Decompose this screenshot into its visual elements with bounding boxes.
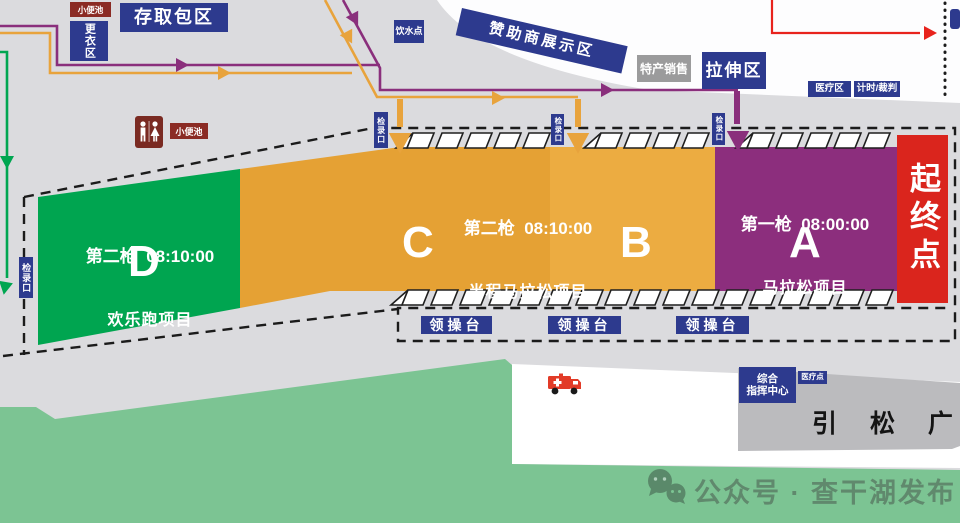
urinal-box-restroom: 小便池 (170, 123, 208, 139)
podium-box-1: 领操台 (421, 316, 492, 334)
checkin-gate-3: 检录口 (712, 113, 725, 145)
zone-d-letter: D (128, 240, 160, 284)
ambulance-icon (547, 373, 584, 396)
bag-storage-box: 存取包区 (120, 3, 228, 32)
restroom-icon (135, 116, 163, 148)
logo-fragment (950, 9, 960, 29)
zone-a-event: 马拉松项目 (715, 274, 895, 298)
zone-d-label: 第二枪 08:10:00 欢乐跑项目 (60, 206, 240, 366)
zone-cb-label: 第二枪 08:10:00 半程马拉松项目 (438, 178, 618, 338)
changing-room-box: 更衣区 (70, 21, 108, 61)
checkin-gate-1: 检录口 (374, 112, 388, 148)
start-finish-label: 起终点 (897, 135, 948, 303)
watermark-text: 公众号 · 查干湖发布 (694, 471, 956, 510)
podium-box-3: 领操台 (676, 316, 749, 334)
checkin-gate-left: 检录口 (19, 257, 33, 298)
plaza-name: 引 松 广 场 (812, 404, 960, 440)
specialty-sales-box: 特产销售 (637, 55, 691, 82)
water-point-box: 饮水点 (394, 20, 424, 43)
zone-b-letter: B (620, 221, 652, 265)
command-center-line2: 指挥中心 (747, 385, 789, 397)
checkin-gate-2: 检录口 (551, 114, 564, 145)
marathon-venue-map: 小便池 存取包区 更衣区 小便池 饮水点 赞助商展示区 特产销售 拉伸区 医疗区… (0, 0, 960, 523)
medical-area-box: 医疗区 (808, 81, 851, 97)
zone-d-event: 欢乐跑项目 (60, 306, 240, 330)
zone-c-letter: C (402, 221, 434, 265)
zone-cb-event: 半程马拉松项目 (438, 278, 618, 302)
stretching-area-box: 拉伸区 (702, 52, 766, 89)
medical-point-box: 医疗点 (798, 371, 827, 384)
podium-box-2: 领操台 (548, 316, 621, 334)
zone-a-letter: A (789, 221, 821, 265)
wechat-icon (645, 468, 689, 506)
zone-cb-gun-time: 第二枪 08:10:00 (438, 214, 618, 239)
command-center-line1: 综合 (757, 373, 778, 385)
urinal-box-top: 小便池 (70, 2, 111, 17)
command-center-box: 综合 指挥中心 (739, 367, 796, 403)
timing-referee-box: 计时/裁判 (854, 81, 900, 97)
